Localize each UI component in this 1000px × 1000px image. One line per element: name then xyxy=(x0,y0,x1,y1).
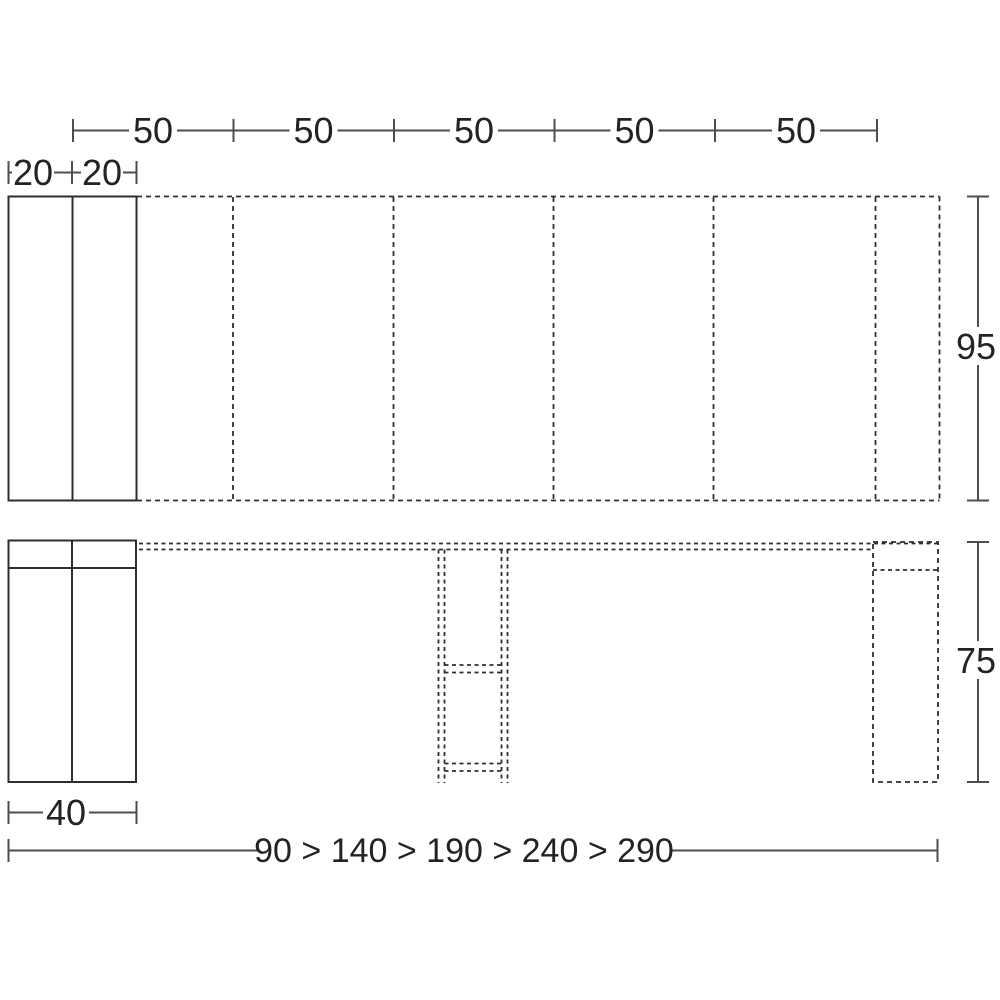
panel-width-dimension-row: 20 20 xyxy=(9,152,138,193)
segment-width-label: 50 xyxy=(776,110,816,151)
depth-label: 95 xyxy=(956,326,996,367)
top-view-plan xyxy=(9,197,940,501)
right-support-leg xyxy=(873,542,938,782)
leg-outline xyxy=(873,542,938,782)
depth-dimension: 95 xyxy=(952,197,1000,501)
panel-width-label: 20 xyxy=(82,152,122,193)
closed-width-label: 40 xyxy=(46,792,86,833)
panel-width-label: 20 xyxy=(13,152,53,193)
height-dimension: 75 xyxy=(952,542,1000,782)
middle-support-leg xyxy=(439,550,508,784)
extension-sequence-label: 90 > 140 > 190 > 240 > 290 xyxy=(254,832,674,870)
segment-width-label: 50 xyxy=(133,110,173,151)
top-width-dimension-row: 50 50 50 50 50 xyxy=(73,110,877,151)
closed-width-dimension: 40 xyxy=(9,792,138,833)
dimension-drawing-canvas: 50 50 50 50 50 20 20 xyxy=(0,0,1000,1000)
segment-width-label: 50 xyxy=(454,110,494,151)
extendable-table-dimension-diagram: 50 50 50 50 50 20 20 xyxy=(0,0,1000,1000)
front-view-elevation xyxy=(9,541,939,784)
segment-width-label: 50 xyxy=(614,110,654,151)
extension-sequence-dimension: 90 > 140 > 190 > 240 > 290 xyxy=(9,832,939,870)
height-label: 75 xyxy=(956,640,996,681)
segment-width-label: 50 xyxy=(293,110,333,151)
